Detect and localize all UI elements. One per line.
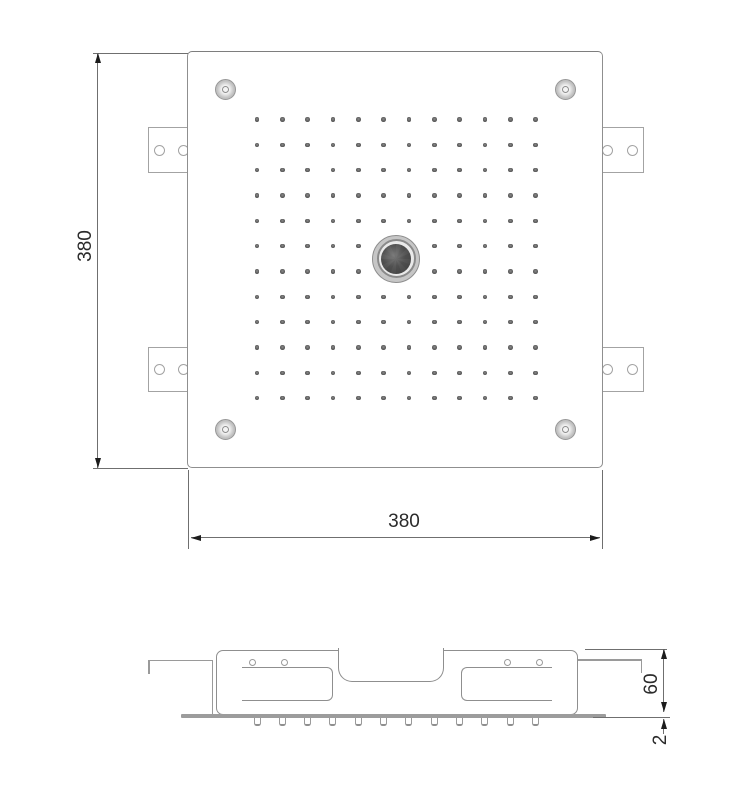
nozzle-stub (254, 718, 261, 727)
drawing-canvas: 380 380 60 (0, 0, 745, 800)
ext-line-60-top (585, 649, 667, 650)
nozzle-stub (279, 718, 286, 727)
dim-label-2: 2 (651, 718, 671, 762)
nozzle-stub (431, 718, 438, 727)
nozzle-stub (304, 718, 311, 727)
section-view: 60 2 (0, 0, 745, 800)
nozzle-stub (532, 718, 539, 727)
nozzle-stub (405, 718, 412, 727)
nozzle-stub (329, 718, 336, 727)
section-nozzle-row (0, 0, 745, 800)
nozzle-stub (355, 718, 362, 727)
nozzle-stub (481, 718, 488, 727)
dim-label-60: 60 (642, 662, 662, 706)
dim-arrow (661, 649, 667, 659)
nozzle-stub (380, 718, 387, 727)
nozzle-stub (456, 718, 463, 727)
nozzle-stub (507, 718, 514, 727)
